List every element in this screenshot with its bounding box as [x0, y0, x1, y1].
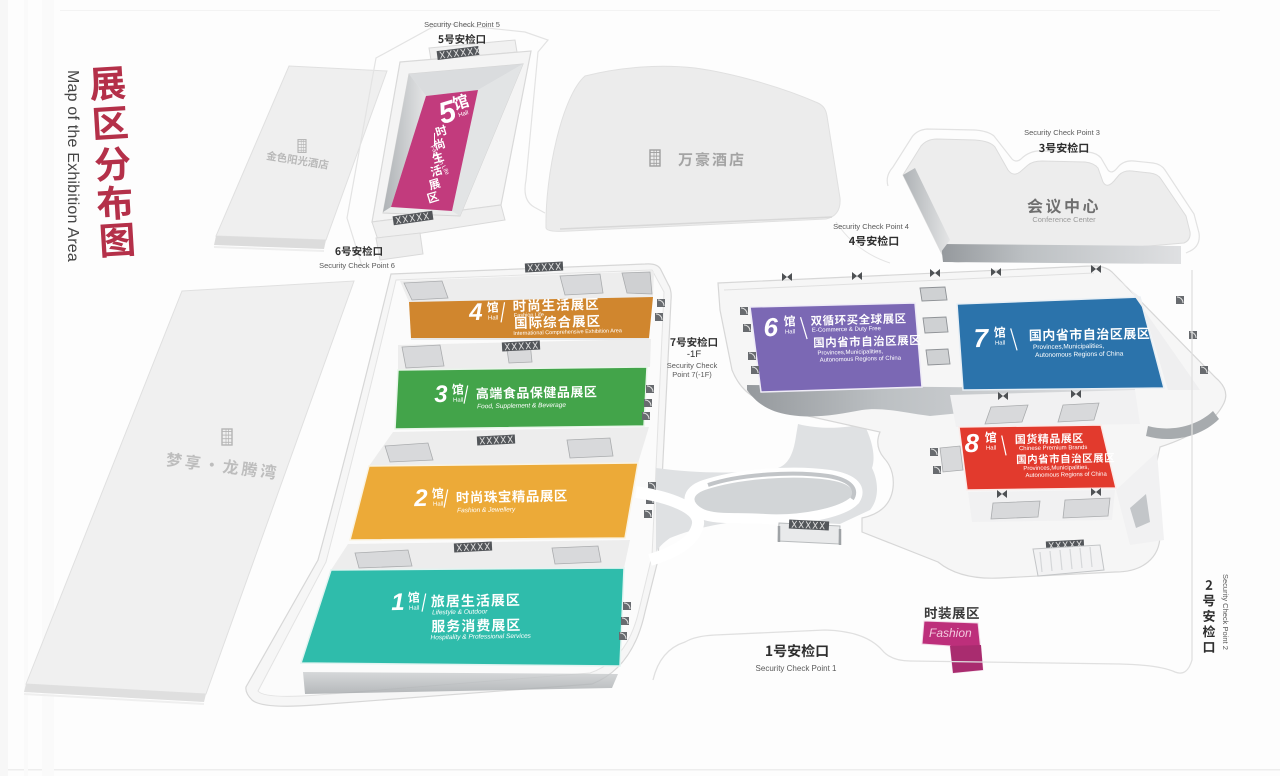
svg-text:Security Check: Security Check [667, 361, 718, 370]
svg-text:Hall: Hall [986, 446, 996, 452]
svg-text:Hall: Hall [785, 329, 795, 335]
svg-text:Hall: Hall [995, 341, 1005, 347]
svg-text:6: 6 [763, 312, 779, 342]
svg-text:Provinces,Municipalities,: Provinces,Municipalities, [1023, 465, 1089, 472]
svg-text:Security Check Point 5: Security Check Point 5 [424, 20, 500, 29]
svg-text:Fashion & Jewellery: Fashion & Jewellery [457, 506, 516, 514]
svg-text:7: 7 [973, 323, 990, 353]
svg-text:Conference Center: Conference Center [1032, 215, 1096, 224]
svg-text:Security Check Point 6: Security Check Point 6 [319, 261, 395, 270]
svg-text:Provinces,Municipalities,: Provinces,Municipalities, [1033, 343, 1104, 351]
svg-text:Hall: Hall [453, 398, 463, 404]
svg-text:Hall: Hall [409, 606, 419, 612]
svg-text:Fashion: Fashion [929, 626, 972, 640]
svg-text:3: 3 [434, 381, 448, 408]
svg-text:Hall: Hall [488, 315, 498, 321]
svg-text:Lifestyle & Outdoor: Lifestyle & Outdoor [432, 608, 488, 616]
svg-text:Security Check Point 4: Security Check Point 4 [833, 222, 909, 231]
svg-text:Hall: Hall [433, 502, 443, 508]
svg-text:8: 8 [964, 428, 980, 458]
svg-text:-1F: -1F [687, 349, 701, 360]
svg-text:1: 1 [391, 589, 405, 616]
svg-text:Chinese Premium Brands: Chinese Premium Brands [1019, 445, 1087, 452]
svg-text:Point 7(-1F): Point 7(-1F) [672, 370, 712, 379]
svg-text:4: 4 [468, 299, 483, 326]
svg-text:2: 2 [413, 485, 428, 512]
svg-text:Map of the Exhibition Area: Map of the Exhibition Area [64, 70, 81, 262]
svg-text:Security Check Point 1: Security Check Point 1 [756, 664, 837, 673]
svg-text:Security Check Point 3: Security Check Point 3 [1024, 128, 1100, 137]
svg-text:Security Check Point 2: Security Check Point 2 [1221, 574, 1230, 650]
